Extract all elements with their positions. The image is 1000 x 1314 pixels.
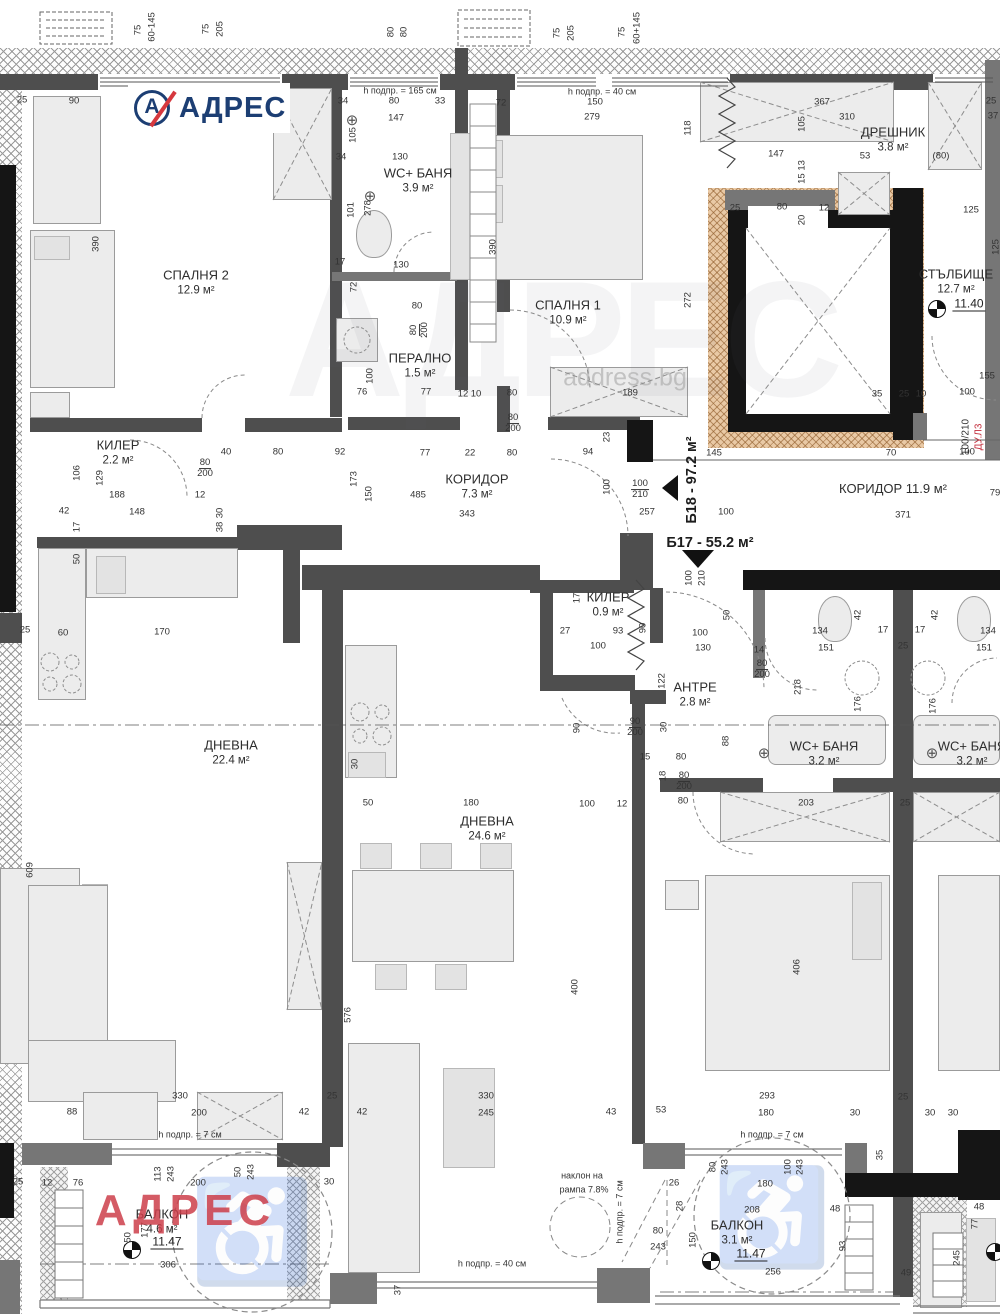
dimension-label: 15 13 <box>797 160 807 184</box>
dimension-label: 25 <box>17 95 28 105</box>
dimension-label: 80 <box>389 96 400 106</box>
dimension-label: 293 <box>759 1091 775 1101</box>
dimension-label: 75 <box>133 25 143 36</box>
dimension-label: h подпр. = 7 см <box>616 1180 625 1243</box>
dimension-label: 77 <box>970 1219 980 1230</box>
dimension-label: 28 <box>675 1201 685 1212</box>
dimension-label: 125 <box>963 205 979 215</box>
dimension-label: 92 <box>335 447 346 457</box>
dimension-label: 80 <box>386 27 396 38</box>
dimension-label: 77 <box>420 448 431 458</box>
room-label: ДНЕВНА22.4 м² <box>204 738 258 769</box>
dimension-label: 22 <box>465 448 476 458</box>
dimension-label: 306 <box>160 1260 176 1270</box>
dimension-label: 42 <box>930 610 940 621</box>
dimension-label: 100210 <box>631 479 649 501</box>
dimension-label: 72 <box>349 282 359 293</box>
dimension-label: 129 <box>95 470 105 486</box>
dimension-label: 150 <box>364 486 374 502</box>
unit-tag-b17: Б17 - 55.2 м² <box>666 535 753 551</box>
dimension-label: 10 <box>471 389 482 399</box>
dimension-label: 80200 <box>754 659 770 681</box>
dimension-label: 30 <box>925 1108 936 1118</box>
dimension-label: 94 <box>583 447 594 457</box>
level-value: 11.40 <box>952 297 985 312</box>
dimension-label: 170 <box>154 627 170 637</box>
room-label: КОРИДОР7.3 м² <box>445 472 508 503</box>
room-label: БАЛКОН3.1 м² <box>711 1218 764 1249</box>
dimension-label: 243 <box>246 1164 256 1180</box>
dimension-label: 33 <box>435 96 446 106</box>
dimension-label: 34 <box>338 96 349 106</box>
dimension-label: 100 <box>783 1159 793 1175</box>
dimension-label: 210 <box>697 570 707 586</box>
dimension-label: 75 <box>617 27 627 38</box>
dimension-label: 25 <box>20 625 31 635</box>
dimension-label: 100 <box>684 570 694 586</box>
dimension-label: 79 <box>990 488 1000 498</box>
level-mark-icon <box>702 1252 720 1270</box>
dimension-label: 151 <box>976 643 992 653</box>
dimension-label: 256 <box>765 1267 781 1277</box>
dimension-label: 93 <box>838 1241 848 1252</box>
dimension-label: 53 <box>656 1105 667 1115</box>
logo-wordmark: АДРЕС <box>179 92 286 125</box>
dimension-label: h подпр. = 165 см <box>363 87 436 96</box>
dimension-label: 50 <box>722 610 732 621</box>
dimension-label: 12 <box>195 490 206 500</box>
dimension-label: 400 <box>570 979 580 995</box>
dimension-label: h подпр. = 7 см <box>158 1131 221 1140</box>
dimension-label: 134 <box>812 626 828 636</box>
dimension-label: 100 <box>602 479 612 495</box>
dimension-label: 310 <box>839 112 855 122</box>
room-label: ДРЕШНИК3.8 м² <box>861 125 925 156</box>
dimension-label: 485 <box>410 490 426 500</box>
section-break-zigzags <box>628 78 735 670</box>
floor-plan: ♿ ♿ АДРЕС address.bg АДРЕС Б17 - 55.2 м²… <box>0 0 1000 1314</box>
dimension-label: 88 <box>721 736 731 747</box>
dimension-label: 30 <box>659 722 669 733</box>
dimension-label: 245 <box>478 1108 494 1118</box>
dimension-label: 100 <box>718 507 734 517</box>
room-label: СТЪЛБИЩЕ12.7 м² <box>919 267 993 298</box>
dimension-label: 25 <box>986 96 997 106</box>
dimension-label: 90 <box>572 723 582 734</box>
dimension-label: 148 <box>129 507 145 517</box>
dimension-label: 576 <box>343 1007 353 1023</box>
dimension-label: 40 <box>221 447 232 457</box>
dimension-label: 17 <box>878 625 889 635</box>
dimension-label: рампа 7.8% <box>559 1186 608 1195</box>
watermark-red: АДРЕС <box>95 1186 275 1236</box>
room-label: СПАЛНЯ 110.9 м² <box>535 298 601 329</box>
dimension-label: 208 <box>744 1205 760 1215</box>
dimension-label: 43 <box>606 1107 617 1117</box>
room-label: WC+ БАНЯ3.9 м² <box>384 166 453 197</box>
radiator-symbol <box>470 104 496 342</box>
dimension-label: 30 <box>850 1108 861 1118</box>
dimension-label: 76 <box>73 1178 84 1188</box>
dimension-label: 35 <box>875 1150 885 1161</box>
dimension-label: 27 <box>560 626 571 636</box>
dimension-label: наклон на <box>561 1172 603 1181</box>
dimension-label: 243 <box>795 1159 805 1175</box>
dimension-label: 80200 <box>676 771 692 793</box>
door-code-tag: ДУ.Л3 <box>974 424 985 451</box>
dimension-label: 34 <box>336 152 347 162</box>
dimension-label: 30 <box>324 1177 335 1187</box>
dimension-label: 406 <box>792 959 802 975</box>
dimension-label: 145 <box>706 448 722 458</box>
dimension-label: 53 <box>860 151 871 161</box>
dimension-label: 80200 <box>505 413 521 435</box>
dimension-label: 180 <box>463 798 479 808</box>
dimension-label: 88 <box>67 1107 78 1117</box>
dimension-label: 113 <box>153 1166 163 1181</box>
dimension-label: 72 <box>496 98 507 108</box>
dimension-label: 60-145 <box>147 12 157 42</box>
dimension-label: 76 <box>357 387 368 397</box>
dimension-label: 279 <box>584 112 600 122</box>
drain-icon: ⊕ <box>926 744 939 762</box>
dimension-label: 42 <box>299 1107 310 1117</box>
dimension-label: 30 <box>215 508 225 519</box>
dimension-label: 50 <box>72 554 82 565</box>
dimension-label: 17 <box>572 593 582 604</box>
dimension-label: 80 <box>708 1162 718 1173</box>
dimension-label: 25 <box>898 641 909 651</box>
dimension-label: 75 <box>201 24 211 35</box>
dimension-label: h подпр. = 7 см <box>740 1131 803 1140</box>
thin-boundaries <box>653 440 1000 460</box>
dimension-label: 25 <box>900 798 911 808</box>
dimension-label: 80 <box>507 448 518 458</box>
dimension-label: 14 <box>754 645 765 655</box>
dimension-label: 390 <box>488 239 498 255</box>
dimension-label: 176 <box>853 696 863 712</box>
dimension-label: 70 <box>886 448 897 458</box>
dimension-label: 130 <box>393 260 409 270</box>
balcony-railing <box>40 1296 1000 1313</box>
dimension-label: 200 <box>191 1108 207 1118</box>
dimension-label: 80 <box>399 27 409 38</box>
dimension-label: 49 <box>901 1268 912 1278</box>
dimension-label: h подпр. = 40 см <box>458 1260 526 1269</box>
dimension-label: 609 <box>25 862 35 878</box>
dimension-label: 106 <box>72 465 82 481</box>
dimension-label: 48 <box>830 1204 841 1214</box>
dimension-label: 17 <box>72 522 82 533</box>
dimension-label: 125 <box>991 239 1000 255</box>
dimension-label: 42 <box>357 1107 368 1117</box>
dimension-label: 243 <box>650 1242 666 1252</box>
dimension-label: 37 <box>988 111 999 121</box>
dimension-label: 77 <box>421 387 432 397</box>
dimension-label: 176 <box>928 698 938 714</box>
dimension-label: 12 <box>819 203 830 213</box>
dimension-label: 10 <box>916 389 927 399</box>
dimension-label: 180 <box>758 1108 774 1118</box>
level-mark-icon <box>928 300 946 318</box>
unit-b17-arrow <box>682 550 714 568</box>
unit-b18-arrow <box>662 475 678 501</box>
level-mark-icon <box>986 1243 1000 1261</box>
dimension-label: 25 <box>898 1092 909 1102</box>
dimension-label: 37 <box>393 1285 403 1296</box>
dimension-label: 101 <box>346 202 356 218</box>
dimension-label: 90200 <box>627 717 643 739</box>
dimension-label: 243 <box>720 1159 730 1175</box>
dimension-label: 371 <box>895 510 911 520</box>
dimension-label: 100 <box>590 641 606 651</box>
stove-burners <box>41 327 945 745</box>
dimension-label: 100 <box>365 368 375 384</box>
dimension-label: 130 <box>392 152 408 162</box>
dimension-label: 80200 <box>197 458 213 480</box>
dimension-label: 173 <box>349 471 359 487</box>
dimension-label: 330 <box>478 1091 494 1101</box>
dimension-label: 48 <box>974 1202 985 1212</box>
dimension-label: 12 <box>42 1178 53 1188</box>
level-value: 11.47 <box>150 1235 183 1250</box>
dimension-label: 150 <box>688 1232 698 1248</box>
room-label: ДНЕВНА24.6 м² <box>460 814 514 845</box>
dimension-label: 25 <box>899 389 910 399</box>
dimension-label: 105 <box>348 127 358 143</box>
dimension-label: 218 <box>793 679 803 695</box>
dimension-label: 50 <box>233 1167 243 1178</box>
dimension-label: 12 <box>617 799 628 809</box>
dimension-label: 272 <box>683 292 693 308</box>
dimension-label: 278 <box>363 200 373 216</box>
dimension-label: 343 <box>459 509 475 519</box>
dimension-label: 25 <box>730 203 741 213</box>
room-label: WC+ БАНЯ3.2 м² <box>790 739 859 770</box>
dimension-label: 23 <box>602 432 612 443</box>
room-label: АНТРЕ2.8 м² <box>673 680 716 711</box>
dimension-label: 93 <box>613 626 624 636</box>
dimension-label: 100 <box>579 799 595 809</box>
dimension-label: 147 <box>388 113 404 123</box>
room-label: КОРИДОР 11.9 м² <box>839 481 947 497</box>
dimension-label: 75 <box>552 28 562 39</box>
dimension-label: 243 <box>166 1166 176 1182</box>
dimension-label: 147 <box>768 149 784 159</box>
dimension-label: 42 <box>853 610 863 621</box>
dimension-label: 25 <box>13 1177 24 1187</box>
dimension-label: 18 <box>658 771 668 782</box>
dimension-label: 118 <box>683 120 693 135</box>
dimension-label: 80 <box>653 1226 664 1236</box>
dimension-label: 25 <box>327 1091 338 1101</box>
dimension-label: 80 <box>507 388 518 398</box>
dimension-label: 203 <box>798 798 814 808</box>
dimension-label: 205 <box>215 21 225 37</box>
dimension-label: 105 <box>797 116 807 132</box>
room-label: ПЕРАЛНО1.5 м² <box>389 351 452 382</box>
dimension-label: 42 <box>59 506 70 516</box>
ac-unit-symbols <box>40 10 530 46</box>
dimension-label: 330 <box>172 1091 188 1101</box>
level-value: 11.47 <box>734 1247 767 1262</box>
room-label: СПАЛНЯ 212.9 м² <box>163 268 229 299</box>
dimension-label: 80 <box>412 301 423 311</box>
dimension-label: 20 <box>797 215 807 226</box>
dimension-label: 151 <box>818 643 834 653</box>
dimension-label: (80) <box>933 151 950 161</box>
dimension-label: 38 <box>215 522 225 533</box>
dimension-label: 80200 <box>409 322 431 338</box>
dimension-label: 35 <box>872 389 883 399</box>
dimension-label: h подпр. = 40 см <box>568 88 636 97</box>
dimension-label: 15 <box>640 752 651 762</box>
dimension-label: 17 <box>335 257 346 267</box>
logo-circle-icon: А <box>134 90 170 126</box>
level-mark-icon <box>123 1241 141 1259</box>
agency-logo: А АДРЕС <box>128 83 290 133</box>
dimension-label: 188 <box>109 490 125 500</box>
dimension-label: 26 <box>669 1178 680 1188</box>
drain-icon: ⊕ <box>758 744 771 762</box>
dimension-label: 80 <box>678 796 689 806</box>
dimension-label: 180 <box>757 1179 773 1189</box>
dimension-label: 90 <box>638 623 648 634</box>
dimension-label: 50 <box>363 798 374 808</box>
dimension-label: 80 <box>777 202 788 212</box>
dimension-label: 17 <box>915 625 926 635</box>
dimension-label: 130 <box>695 643 711 653</box>
dimension-label: 30 <box>350 759 360 770</box>
door-size-tag: 100/210 <box>961 419 972 455</box>
dimension-label: 100 <box>692 628 708 638</box>
dimension-label: 90 <box>69 96 80 106</box>
unit-tag-b18: Б18 - 97.2 м² <box>684 436 700 523</box>
dimension-label: 257 <box>639 507 655 517</box>
dimension-label: 60 <box>58 628 69 638</box>
dimension-label: 80 <box>273 447 284 457</box>
dimension-label: 12 <box>458 389 469 399</box>
dimension-label: 189 <box>622 388 638 398</box>
dimension-label: 134 <box>980 626 996 636</box>
dimension-label: 60+145 <box>632 12 642 44</box>
dimension-label: 100 <box>959 387 975 397</box>
dimension-label: 155 <box>979 371 995 381</box>
dimension-label: 390 <box>91 236 101 252</box>
room-label: КИЛЕР2.2 м² <box>97 438 140 469</box>
dimension-label: 150 <box>587 97 603 107</box>
dimension-label: 122 <box>657 673 667 689</box>
room-label: КИЛЕР0.9 м² <box>587 590 630 621</box>
dimension-label: 80 <box>676 752 687 762</box>
dimension-label: 205 <box>566 25 576 41</box>
room-label: WC+ БАНЯ3.2 м² <box>938 739 1000 770</box>
dimension-label: 245 <box>952 1250 962 1266</box>
dimension-label: 367 <box>814 97 830 107</box>
dimension-label: 30 <box>948 1108 959 1118</box>
